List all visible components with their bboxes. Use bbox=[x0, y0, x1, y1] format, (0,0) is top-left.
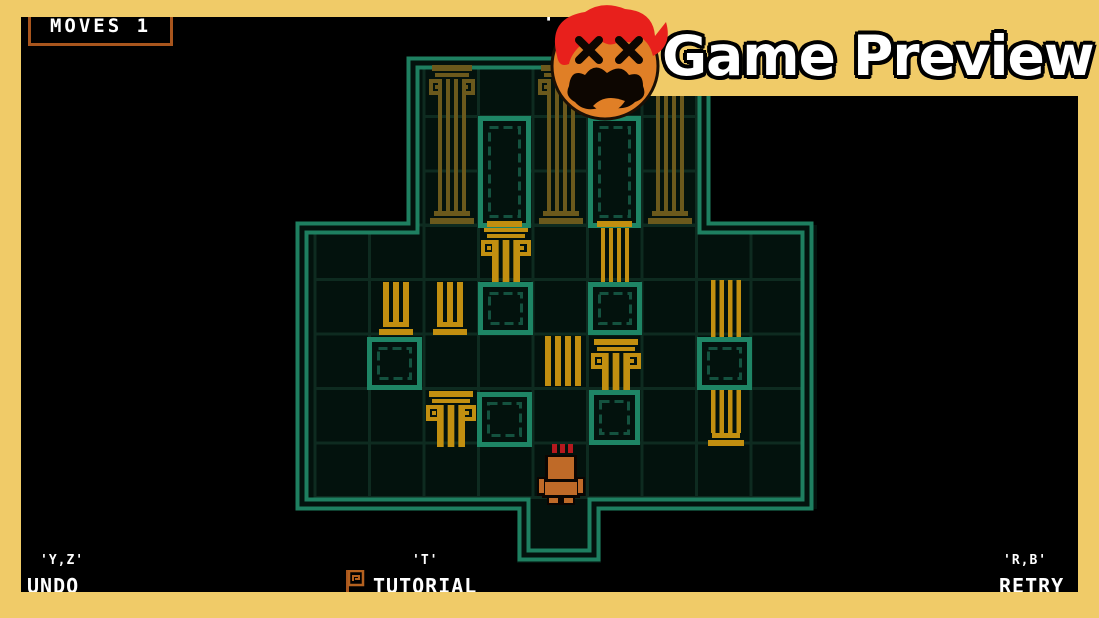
frame-left bbox=[0, 0, 21, 618]
undo-key-hint: 'Y,Z' bbox=[40, 553, 84, 568]
moves-label: MOVES 1 bbox=[31, 15, 170, 37]
game-screen: MOVES 1 ' 'Y,Z' UNDO 'T' TUTORIAL 'R,B' … bbox=[0, 0, 1099, 618]
game-preview-title: Game Preview bbox=[662, 24, 1097, 88]
level-geometry bbox=[296, 57, 817, 563]
frame-bottom bbox=[0, 592, 1099, 618]
greek-flag-icon bbox=[345, 570, 365, 594]
ko-face-logo-icon bbox=[541, 2, 673, 124]
retry-key-hint: 'R,B' bbox=[1003, 553, 1047, 568]
game-preview-banner: Game Preview bbox=[640, 0, 1099, 96]
tutorial-key-hint: 'T' bbox=[412, 553, 438, 568]
